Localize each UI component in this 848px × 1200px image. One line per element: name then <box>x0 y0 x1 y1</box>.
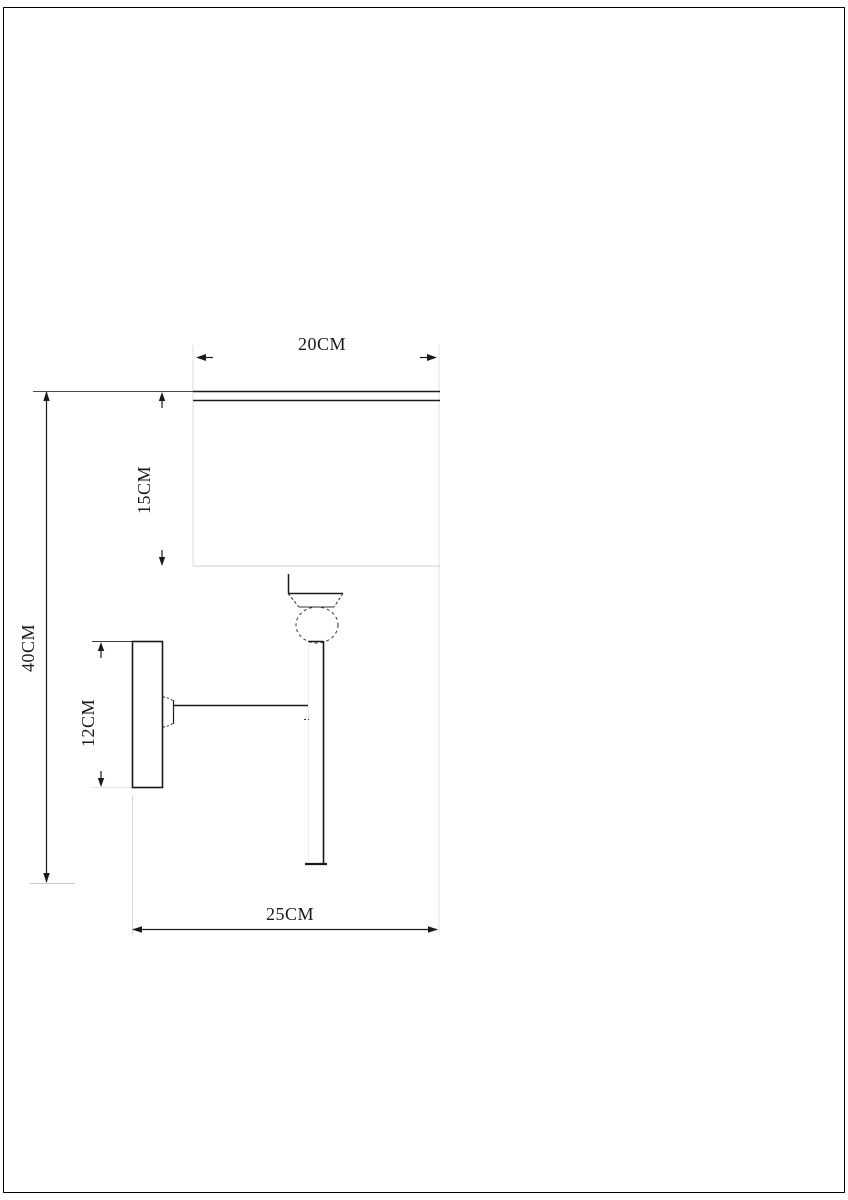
bulb-outline <box>296 607 338 643</box>
dimension-overall-depth: 25CM <box>132 904 438 933</box>
arm-bracket-top-curve <box>163 697 173 701</box>
holder-cup-right-side <box>334 594 343 608</box>
holder-cup-left-side <box>288 594 299 608</box>
arm-bracket-bottom-curve <box>163 723 173 727</box>
backplate-bottom-arrowhead <box>98 778 104 787</box>
shade-width-left-arrowhead <box>196 354 206 361</box>
overall-depth-right-arrowhead <box>428 926 438 932</box>
overall-depth-label: 25CM <box>266 904 314 924</box>
wall-plate <box>133 642 163 788</box>
overall-height-label: 40CM <box>18 624 38 672</box>
overall-height-top-arrowhead <box>43 391 49 401</box>
lamp-dimension-drawing: 20CM 15CM 40CM 12CM <box>0 0 848 1200</box>
shade-width-right-arrowhead <box>427 354 437 361</box>
overall-height-bottom-arrowhead <box>43 873 49 883</box>
dimension-shade-height: 15CM <box>134 392 165 566</box>
lamp-fixture <box>133 392 441 865</box>
dimension-overall-height: 40CM <box>18 391 50 883</box>
overall-depth-left-arrowhead <box>132 926 142 932</box>
backplate-top-arrowhead <box>98 642 104 651</box>
shade-width-label: 20CM <box>298 334 346 354</box>
shade-height-label: 15CM <box>134 466 154 514</box>
backplate-height-label: 12CM <box>78 699 98 747</box>
shade-height-bottom-arrowhead <box>159 557 165 566</box>
dimension-backplate-height: 12CM <box>78 642 104 787</box>
page-border <box>4 8 845 1193</box>
drawing-page: 20CM 15CM 40CM 12CM <box>0 0 848 1200</box>
extension-lines <box>30 345 440 935</box>
shade-height-top-arrowhead <box>159 392 165 401</box>
dimension-shade-width: 20CM <box>196 334 437 361</box>
